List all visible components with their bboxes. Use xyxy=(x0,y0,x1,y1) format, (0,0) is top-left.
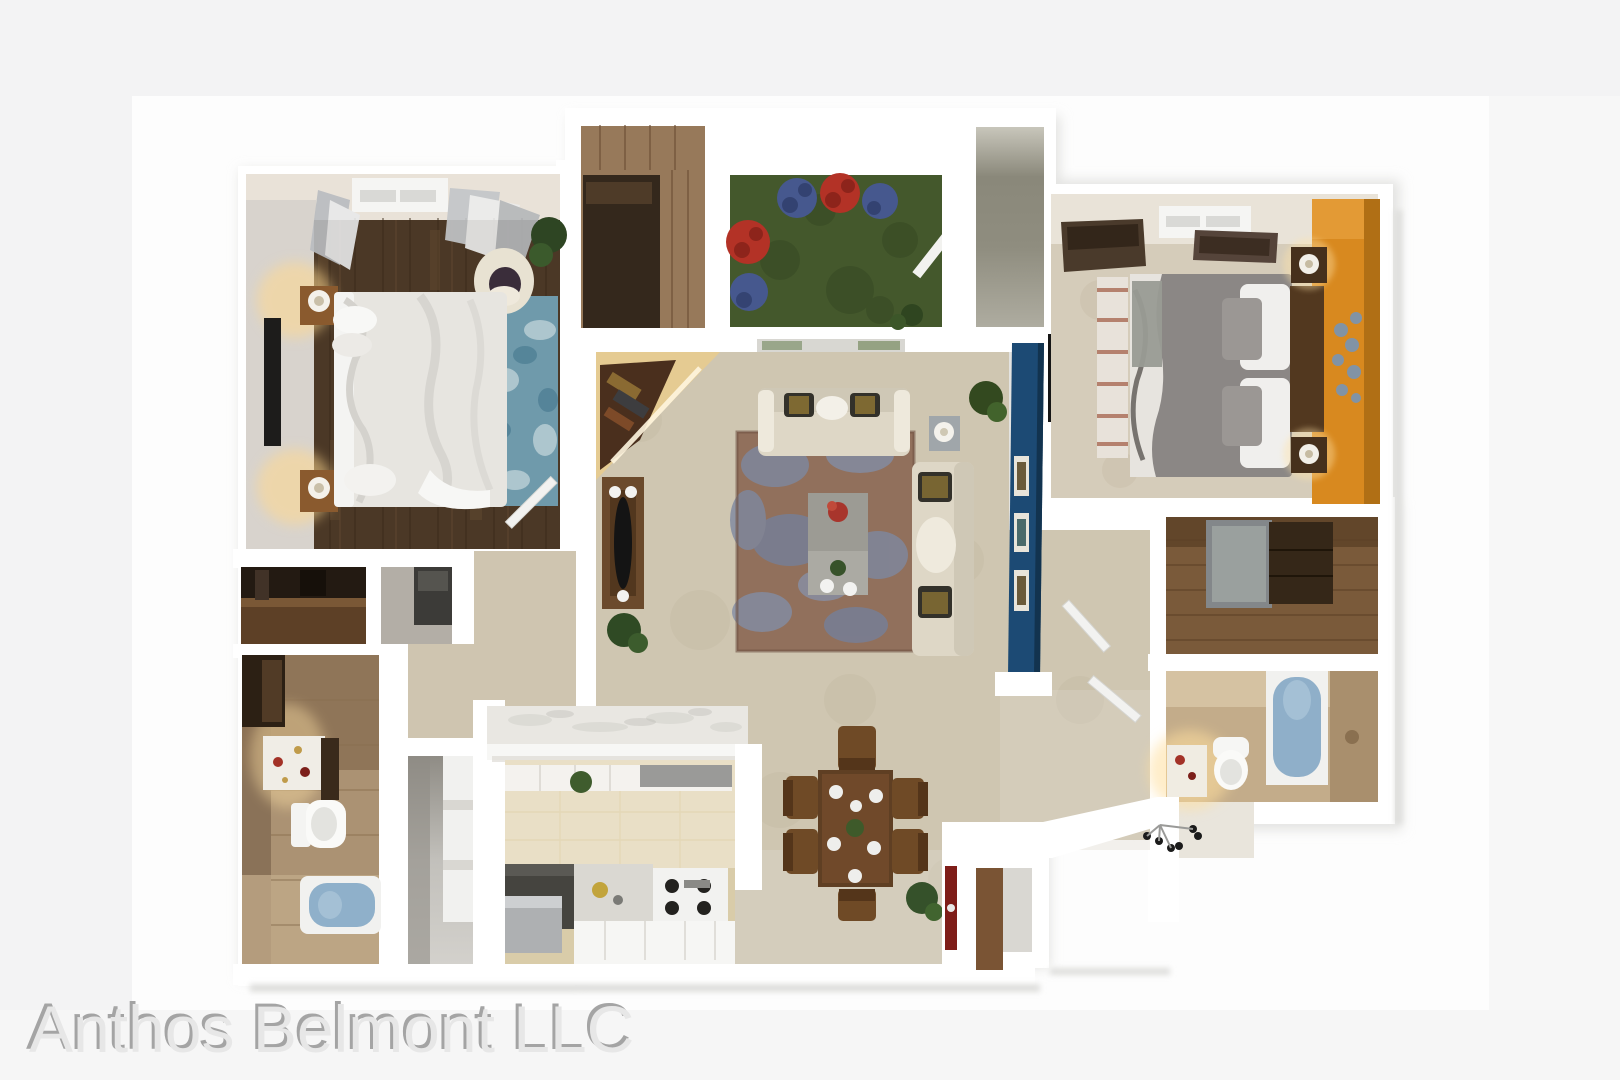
svg-text:Anthos Belmont LLC: Anthos Belmont LLC xyxy=(29,992,634,1066)
